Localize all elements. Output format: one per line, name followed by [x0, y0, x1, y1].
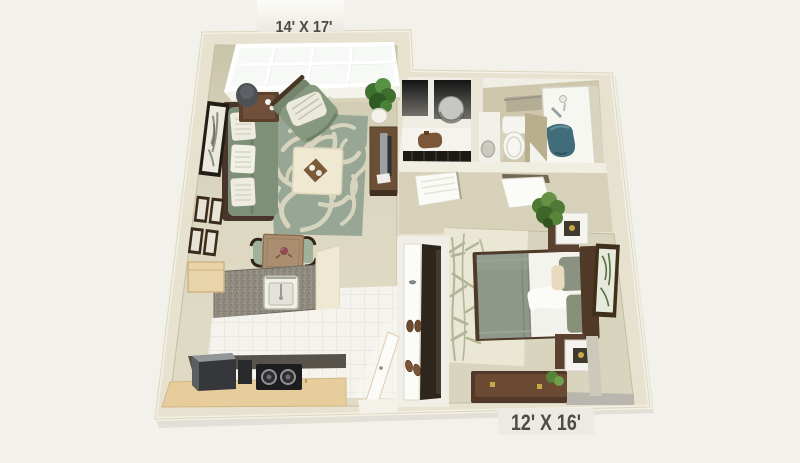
svg-text:14' X 17': 14' X 17': [276, 19, 333, 36]
svg-text:12' X 16': 12' X 16': [511, 410, 581, 435]
